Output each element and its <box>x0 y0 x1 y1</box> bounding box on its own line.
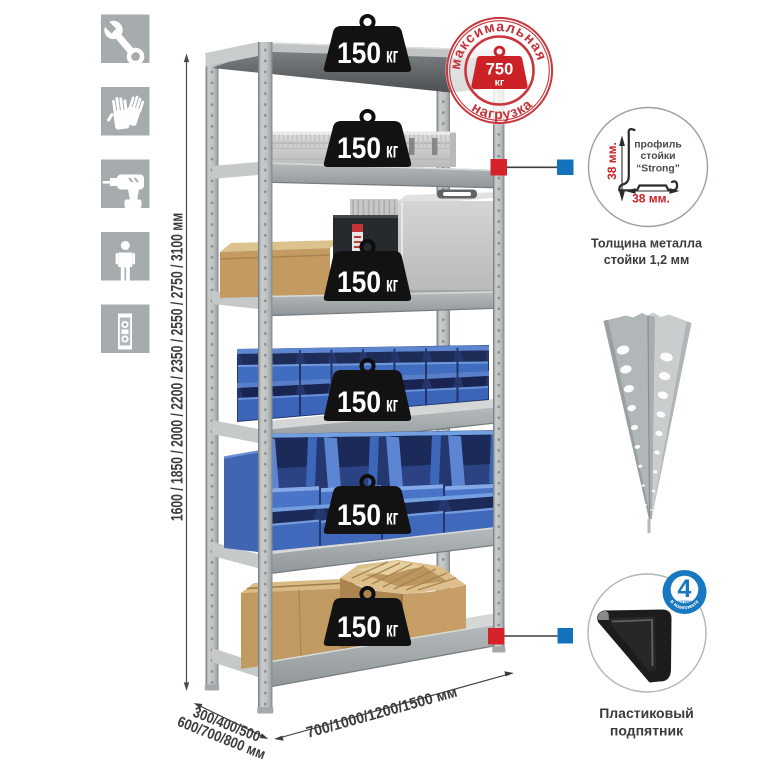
svg-text:150: 150 <box>337 384 381 418</box>
svg-text:кг: кг <box>386 272 398 296</box>
svg-text:Толщина металла: Толщина металла <box>591 237 703 251</box>
svg-text:штуки: штуки <box>678 599 691 604</box>
svg-text:38 мм.: 38 мм. <box>632 192 670 206</box>
svg-text:кг: кг <box>495 77 505 89</box>
svg-text:150: 150 <box>337 609 381 643</box>
svg-text:стойки 1,2 мм: стойки 1,2 мм <box>604 253 690 267</box>
svg-text:кг: кг <box>386 505 398 529</box>
svg-text:кг: кг <box>386 392 398 416</box>
svg-text:кг: кг <box>386 138 398 162</box>
svg-text:профиль: профиль <box>634 139 681 151</box>
svg-text:стойки: стойки <box>640 151 675 162</box>
svg-text:150: 150 <box>337 497 381 531</box>
svg-text:1600 / 1850 / 2000 / 2200 / 23: 1600 / 1850 / 2000 / 2200 / 2350 / 2550 … <box>169 213 187 521</box>
svg-text:кг: кг <box>386 617 398 641</box>
svg-text:кг: кг <box>386 43 398 67</box>
svg-text:150: 150 <box>337 264 381 298</box>
svg-text:150: 150 <box>337 35 381 69</box>
svg-text:38 мм.: 38 мм. <box>605 142 619 180</box>
svg-text:Пластиковый: Пластиковый <box>599 705 694 721</box>
svg-text:“Strong”: “Strong” <box>636 163 680 174</box>
svg-text:подпятник: подпятник <box>610 723 684 739</box>
svg-text:150: 150 <box>337 130 381 164</box>
